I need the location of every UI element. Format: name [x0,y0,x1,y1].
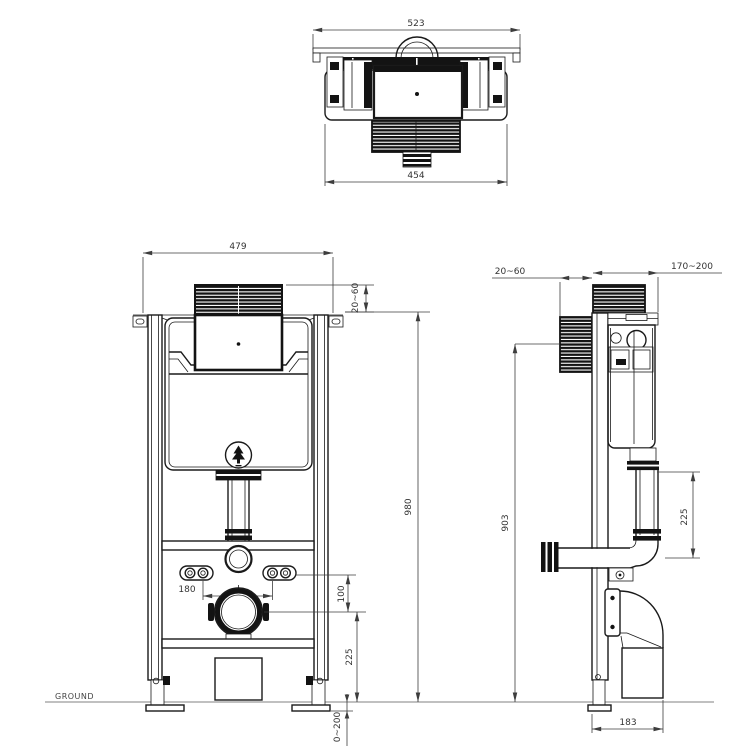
frame-rail-right-front [314,315,328,680]
dim-text-980: 980 [404,498,414,515]
rail-end-cap-left [327,57,343,107]
dim-overall-width: 523 [313,19,520,50]
foot-left-front [146,676,184,711]
bottom-duct-front [215,658,262,700]
cistern-side [608,313,659,470]
side-block-left [344,60,372,110]
dim-text-20-60-front: 20~60 [351,283,361,314]
dim-text-20-60-side: 20~60 [495,267,526,277]
dim-text-479: 479 [229,242,246,252]
inlet-connector [403,152,431,167]
dim-text-454: 454 [407,171,424,181]
protection-cover-top [372,121,460,152]
dim-text-100: 100 [337,585,347,602]
control-access-box-top [374,66,462,118]
technical-drawing-sheet: GROUND 523 [0,0,750,750]
flush-pipe-front [225,480,252,542]
pipe-dome-arc [396,37,438,58]
waste-bend-side [605,589,663,698]
crossbar-lower [162,639,314,648]
top-view: 523 [313,19,520,186]
dim-text-170-200: 170~200 [671,262,713,272]
dim-tank-to-bend: 225 [657,472,700,558]
dim-text-183: 183 [619,718,636,728]
ground-line-group: GROUND [45,692,714,702]
waste-outlet-front [208,585,269,641]
dim-outlet-height: 225 [345,612,357,702]
flush-plate-shaft-side [560,317,592,372]
dim-text-0-200: 0~200 [333,712,343,743]
cistern-frame-drawing: GROUND 523 [0,0,750,750]
brand-logo-spruce-icon [226,442,252,468]
dim-flush-plate-height: 903 [501,344,560,702]
front-view: 479 20~60 [133,242,430,746]
side-view: 20~60 170~200 [492,262,722,733]
protection-cover-side [593,285,645,313]
dim-cover-protrusion-side: 20~60 [492,267,592,318]
dim-text-903: 903 [501,514,511,531]
dim-text-180: 180 [178,585,195,595]
dim-text-225-side: 225 [680,508,690,525]
frame-rail-left-front [148,315,162,680]
dim-text-225-front: 225 [345,648,355,665]
access-box-front [195,315,282,370]
dim-cover-protrusion-front: 20~60 [286,283,374,314]
side-block-right [460,60,488,110]
protection-cover-front [195,285,282,315]
foot-right-front [292,676,330,711]
dim-frame-height: 980 [345,312,430,702]
rail-end-cap-right [489,57,505,107]
ground-label: GROUND [55,692,94,701]
tank-outlet-nut-front [216,470,261,480]
dim-text-523: 523 [407,19,424,29]
flush-bend-front [226,546,252,572]
